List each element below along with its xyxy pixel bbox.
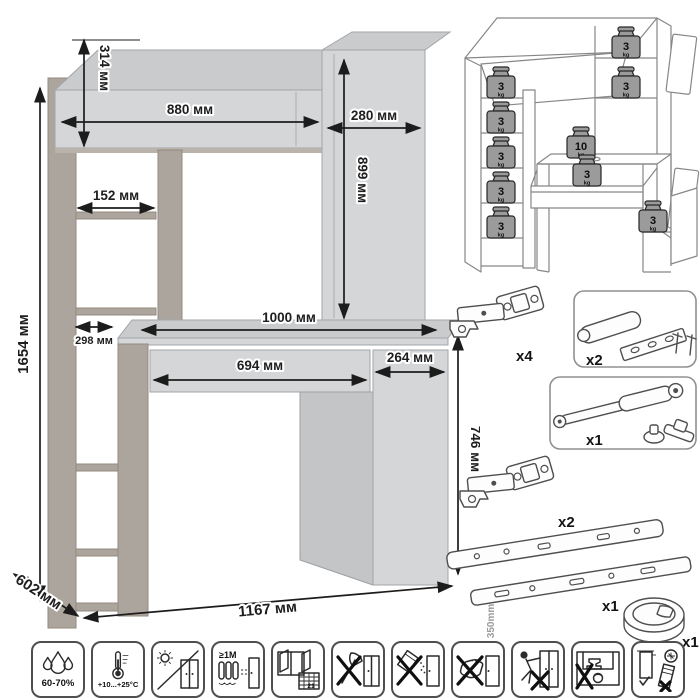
no-direct-sunlight-icon bbox=[155, 648, 201, 692]
damper-qty: x2 bbox=[586, 352, 603, 369]
no-wet-cleaning-icon bbox=[455, 648, 501, 692]
side-cabinet-top-face bbox=[322, 32, 450, 50]
shelf-partition-panel bbox=[158, 150, 182, 342]
dim-label-drawer-width: 694 мм bbox=[237, 358, 283, 373]
svg-text:3: 3 bbox=[623, 41, 629, 53]
svg-text:3: 3 bbox=[650, 215, 656, 227]
care-tile-ventilation: 21 bbox=[271, 641, 325, 698]
weight-badge: 3kg bbox=[487, 137, 515, 169]
svg-text:3: 3 bbox=[584, 169, 590, 181]
care-tile-no-wet-cleaning bbox=[451, 641, 505, 698]
svg-text:kg: kg bbox=[623, 93, 629, 99]
dim-shelf-depth: 298 мм bbox=[75, 327, 113, 347]
hinge-top-qty: x4 bbox=[516, 348, 533, 365]
hardware-panel: x4 x2 bbox=[440, 285, 700, 653]
svg-text:3: 3 bbox=[498, 151, 504, 163]
svg-text:kg: kg bbox=[498, 163, 504, 169]
svg-text:3: 3 bbox=[498, 81, 504, 93]
hardware-hinge-top: x4 bbox=[450, 285, 544, 365]
dim-label-side-cabinet-height: 899 мм bbox=[355, 157, 370, 203]
furniture-dimension-diagram: 1654 мм 314 мм 880 мм 280 мм 899 мм 152 … bbox=[0, 0, 480, 640]
care-tile-humidity: 60-70% bbox=[31, 641, 85, 698]
dim-label-hutch-width: 880 мм bbox=[167, 102, 213, 117]
hutch-top-face bbox=[55, 50, 322, 90]
slides-length-label: 350mm bbox=[486, 604, 497, 639]
gas-lift-qty: x1 bbox=[586, 432, 603, 449]
no-overloading-icon bbox=[575, 648, 621, 692]
care-tile-no-abrasives bbox=[391, 641, 445, 698]
thermometer-icon bbox=[96, 650, 140, 680]
care-tile-no-dragging bbox=[511, 641, 565, 698]
dim-label-shelf-width: 152 мм bbox=[93, 188, 139, 203]
heat-distance-icon: ≥1М bbox=[215, 648, 261, 692]
weight-badge: 3kg bbox=[487, 207, 515, 239]
dim-label-total-width: 1167 мм bbox=[238, 598, 298, 620]
dim-label-side-cabinet-width: 280 мм bbox=[351, 108, 397, 123]
dim-label-total-height: 1654 мм bbox=[15, 314, 32, 374]
svg-text:3: 3 bbox=[498, 221, 504, 233]
care-tile-temperature: +10...+25°С bbox=[91, 641, 145, 698]
care-tile-no-direct-sunlight bbox=[151, 641, 205, 698]
svg-text:kg: kg bbox=[498, 128, 504, 134]
hardware-gas-lift: x1 bbox=[550, 377, 697, 449]
pedestal-side bbox=[300, 392, 373, 585]
dim-total-height: 1654 мм bbox=[15, 88, 40, 600]
svg-text:kg: kg bbox=[623, 53, 629, 59]
svg-text:kg: kg bbox=[498, 233, 504, 239]
dim-label-pedestal-width: 264 мм bbox=[387, 350, 433, 365]
shelf bbox=[76, 212, 156, 219]
humidity-label: 60-70% bbox=[42, 679, 75, 689]
shelf bbox=[76, 464, 118, 471]
hardware-hinge-bottom: x2 bbox=[460, 455, 575, 531]
side-cabinet-front bbox=[322, 50, 425, 322]
hardware-damper: x2 bbox=[574, 291, 696, 369]
left-upright-panel bbox=[48, 78, 76, 628]
care-tile-anchor-to-wall bbox=[631, 641, 685, 698]
svg-text:kg: kg bbox=[650, 227, 656, 233]
care-icon-strip: 60-70% +10...+25°С ≥1М bbox=[31, 641, 693, 699]
anchor-to-wall-icon bbox=[635, 648, 681, 692]
no-sharp-tools-icon bbox=[335, 648, 381, 692]
no-abrasives-icon bbox=[395, 648, 441, 692]
svg-text:kg: kg bbox=[498, 93, 504, 99]
humidity-icon bbox=[36, 650, 80, 678]
pedestal-door bbox=[373, 350, 448, 585]
temperature-label: +10...+25°С bbox=[98, 681, 139, 689]
min-distance-label: ≥1М bbox=[219, 650, 236, 660]
dim-label-shelf-depth: 298 мм bbox=[75, 335, 113, 347]
care-tile-no-overloading bbox=[571, 641, 625, 698]
svg-text:kg: kg bbox=[584, 181, 590, 187]
weight-badge: 3kg bbox=[487, 102, 515, 134]
ventilation-icon: 21 bbox=[275, 648, 321, 692]
svg-text:3: 3 bbox=[498, 186, 504, 198]
shelf bbox=[76, 603, 118, 611]
care-tile-no-sharp-tools bbox=[331, 641, 385, 698]
svg-text:3: 3 bbox=[498, 116, 504, 128]
svg-text:10: 10 bbox=[575, 141, 587, 153]
dim-label-hutch-height: 314 мм bbox=[97, 45, 112, 91]
dim-label-desktop-width: 1000 мм bbox=[262, 310, 316, 325]
slides-qty: x1 bbox=[602, 598, 619, 615]
dim-shelf-width: 152 мм bbox=[78, 188, 154, 208]
no-dragging-icon bbox=[515, 648, 561, 692]
svg-text:3: 3 bbox=[623, 81, 629, 93]
desk-side-panel bbox=[118, 344, 148, 616]
desktop-edge bbox=[118, 338, 448, 345]
hinge-bottom-qty: x2 bbox=[558, 514, 575, 531]
hutch-front bbox=[55, 90, 322, 148]
shelf bbox=[76, 549, 118, 556]
weight-badge: 10kg bbox=[567, 127, 595, 159]
care-tile-heat-distance: ≥1М bbox=[211, 641, 265, 698]
load-capacity-diagram: 3kg 3kg 3kg 3kg 3kg 3kg 3kg 10kg 3kg 3kg bbox=[445, 0, 700, 300]
shelf bbox=[76, 308, 156, 315]
svg-text:kg: kg bbox=[498, 198, 504, 204]
weight-badge: 3kg bbox=[487, 172, 515, 204]
calendar-day-label: 21 bbox=[307, 683, 315, 690]
